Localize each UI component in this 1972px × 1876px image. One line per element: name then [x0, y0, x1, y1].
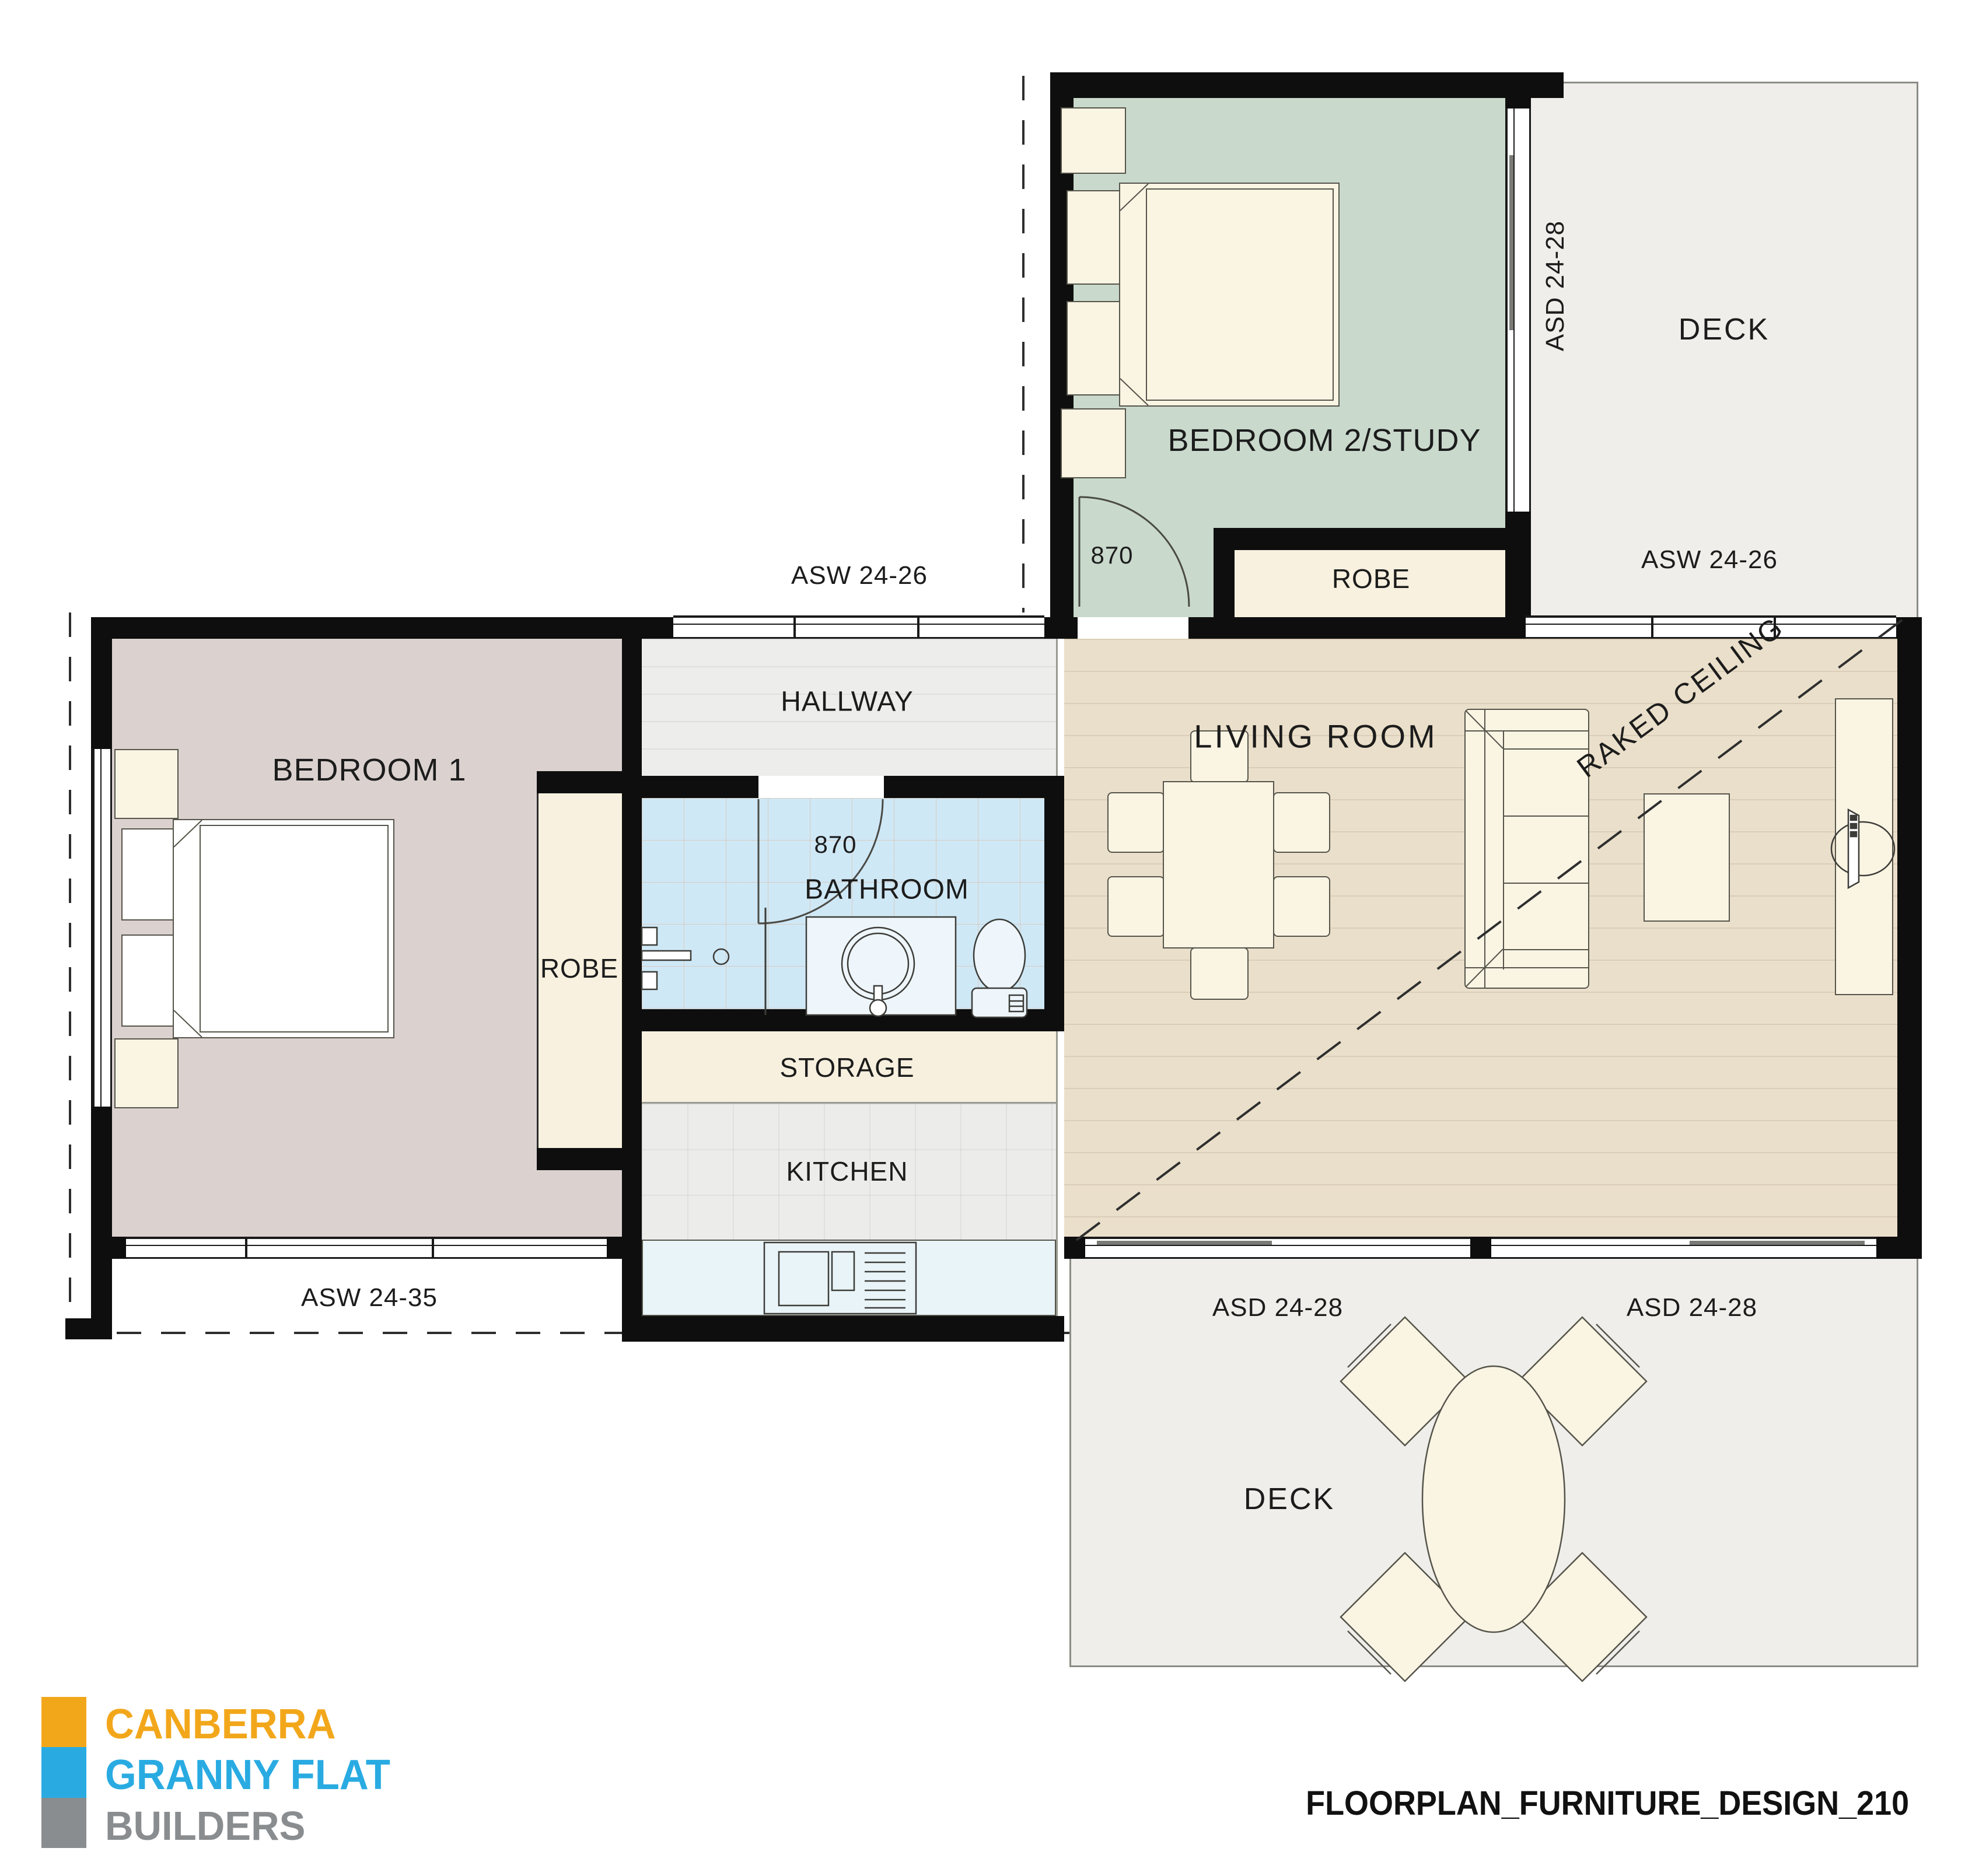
label-asw-living: ASW 24-26 [1641, 545, 1778, 575]
label-bedroom2: BEDROOM 2/STUDY [1167, 422, 1481, 459]
sofa-mitre-lines [1466, 710, 1503, 987]
vanity [806, 917, 956, 1016]
toilet [972, 919, 1027, 1017]
label-robe1: ROBE [540, 953, 618, 984]
label-deck-bottom: DECK [1244, 1482, 1335, 1517]
label-asd-deck-top: ASD 24-28 [1541, 220, 1570, 351]
label-asw-bedroom1: ASW 24-35 [301, 1283, 438, 1312]
raked-ceiling-line [1076, 611, 1914, 1240]
label-deck-top: DECK [1679, 312, 1770, 347]
label-door870-bedroom2: 870 [1090, 541, 1133, 569]
label-door870-bathroom: 870 [814, 831, 856, 859]
deck-dining-set [1341, 1317, 1646, 1681]
label-hallway: HALLWAY [781, 686, 914, 718]
label-asd-living-left: ASD 24-28 [1212, 1293, 1343, 1322]
logo-text-builders: BUILDERS [105, 1803, 305, 1849]
label-asd-living-right: ASD 24-28 [1627, 1293, 1757, 1322]
bed1-fold-lines [174, 820, 202, 1037]
shower-fittings [642, 908, 765, 1015]
drawing-title: FLOORPLAN_FURNITURE_DESIGN_210 [1306, 1784, 1897, 1823]
label-living-room: LIVING ROOM [1194, 717, 1437, 755]
logo-bar-orange [41, 1697, 86, 1747]
logo-text-granny-flat: GRANNY FLAT [105, 1751, 390, 1799]
bed2-fold-lines [1120, 184, 1148, 405]
label-robe2: ROBE [1332, 563, 1410, 594]
label-bedroom1: BEDROOM 1 [272, 752, 466, 788]
linework-overlay [0, 0, 1972, 1876]
logo-bar-blue [41, 1747, 86, 1798]
label-storage: STORAGE [779, 1052, 914, 1083]
logo-text-canberra: CANBERRA [105, 1700, 336, 1748]
tv [1831, 810, 1894, 888]
label-kitchen: KITCHEN [786, 1156, 908, 1187]
floorplan-canvas: BEDROOM 2/STUDY ROBE 870 DECK ASD 24-28 … [0, 0, 1972, 1876]
logo-bar-gray [41, 1798, 86, 1848]
kitchen-sink-cooktop [764, 1242, 916, 1314]
label-bathroom: BATHROOM [805, 874, 969, 906]
label-asw-hallway: ASW 24-26 [791, 561, 928, 590]
